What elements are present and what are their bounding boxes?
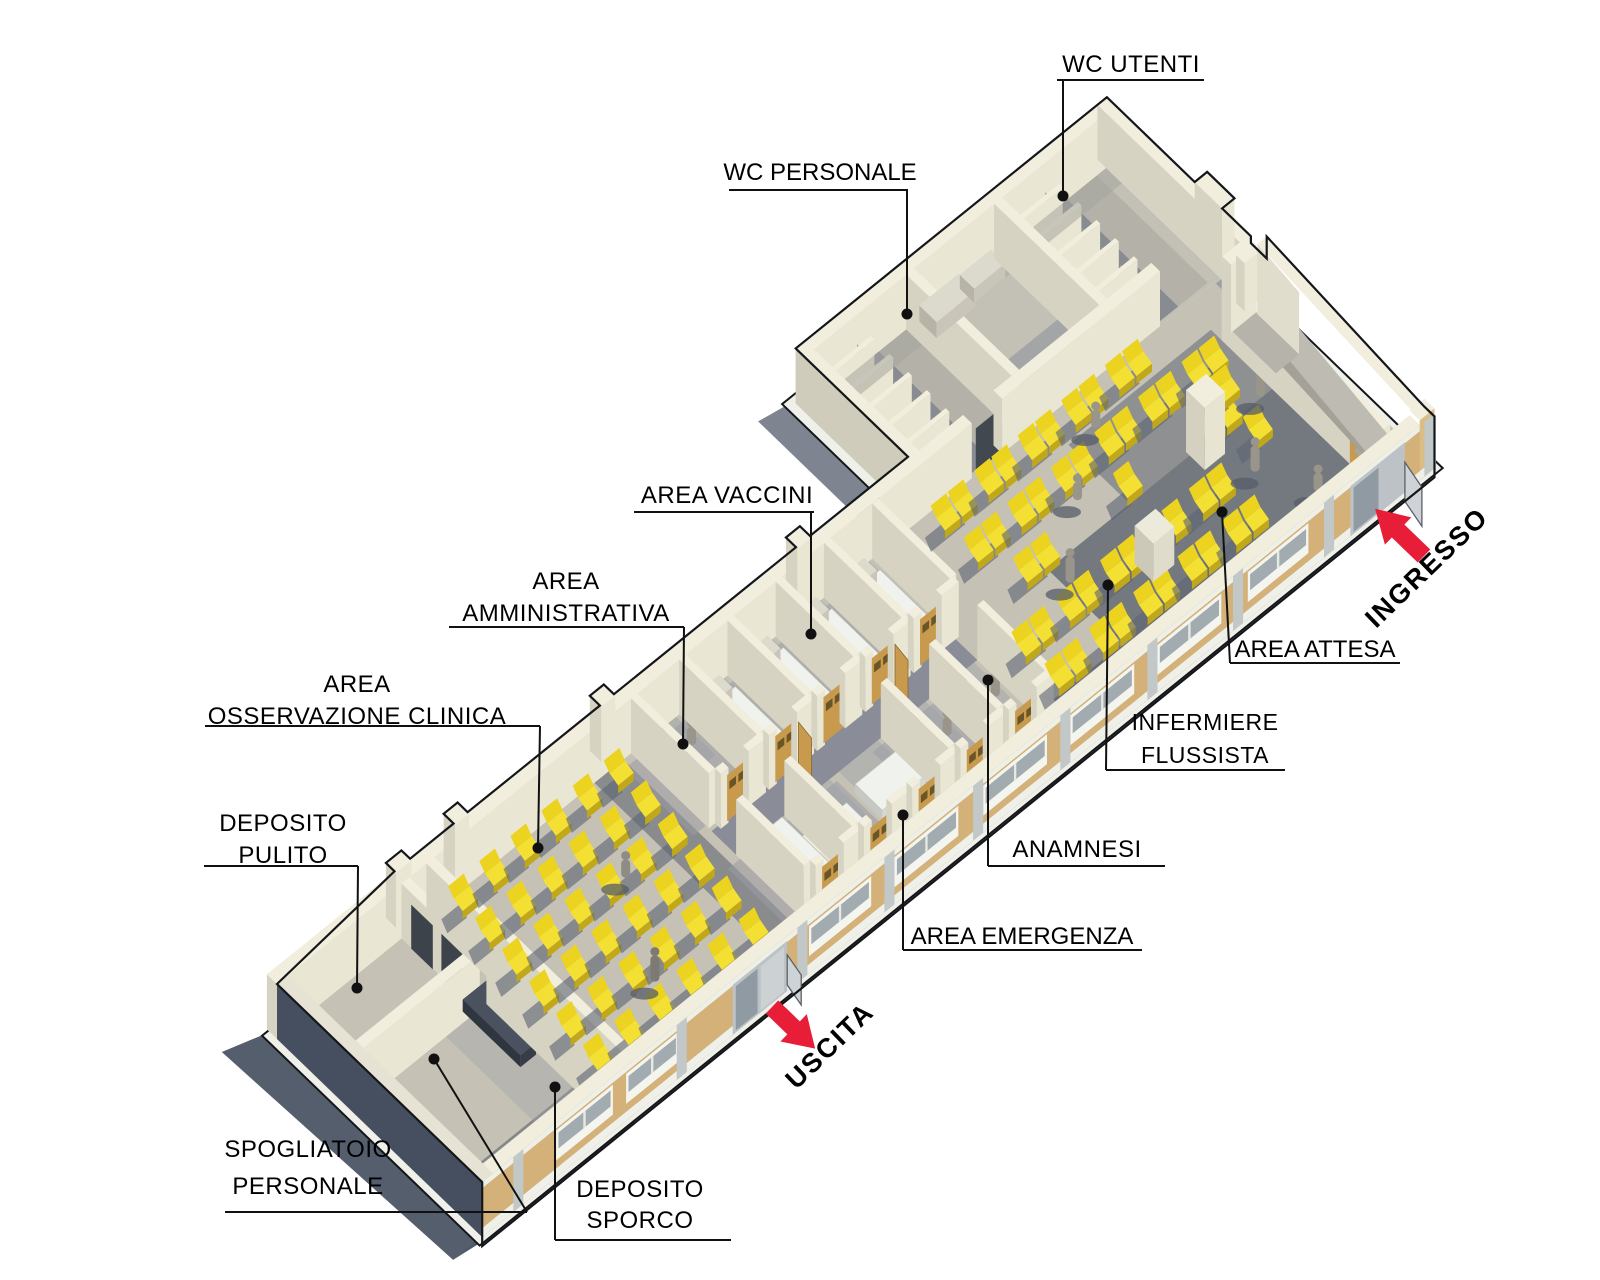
svg-text:WC UTENTI: WC UTENTI <box>1062 51 1200 78</box>
svg-text:AREA VACCINI: AREA VACCINI <box>641 482 813 509</box>
svg-text:DEPOSITO: DEPOSITO <box>219 810 347 837</box>
svg-text:PERSONALE: PERSONALE <box>232 1173 383 1200</box>
svg-text:WC PERSONALE: WC PERSONALE <box>723 159 916 186</box>
svg-text:AMMINISTRATIVA: AMMINISTRATIVA <box>462 600 669 627</box>
svg-text:AREA: AREA <box>532 568 599 595</box>
svg-text:SPOGLIATOIO: SPOGLIATOIO <box>224 1136 391 1163</box>
svg-text:AREA ATTESA: AREA ATTESA <box>1235 636 1396 663</box>
svg-text:PULITO: PULITO <box>238 842 327 869</box>
svg-text:DEPOSITO: DEPOSITO <box>576 1176 704 1203</box>
svg-text:AREA EMERGENZA: AREA EMERGENZA <box>911 923 1134 950</box>
svg-text:AREA: AREA <box>323 671 390 698</box>
svg-text:INFERMIERE: INFERMIERE <box>1132 709 1279 735</box>
svg-text:ANAMNESI: ANAMNESI <box>1012 836 1141 863</box>
svg-text:FLUSSISTA: FLUSSISTA <box>1141 742 1269 768</box>
svg-text:SPORCO: SPORCO <box>586 1207 693 1234</box>
